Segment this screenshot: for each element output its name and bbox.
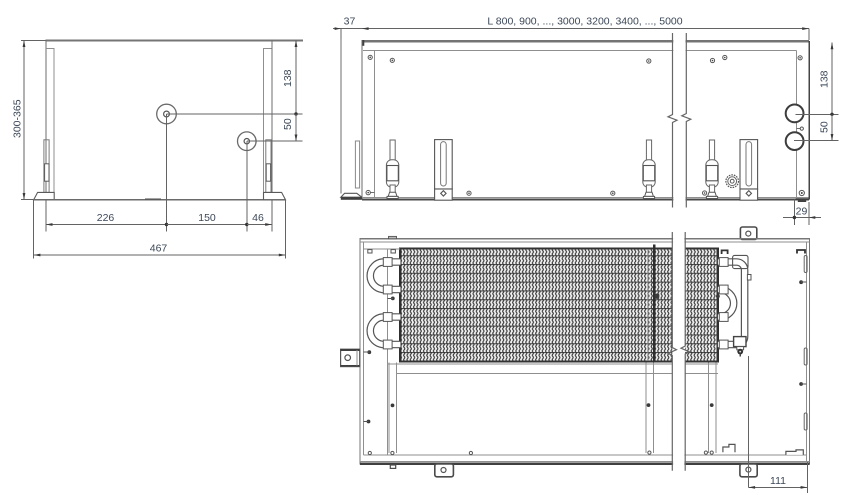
svg-text:46: 46: [252, 212, 264, 224]
svg-text:467: 467: [150, 243, 168, 255]
svg-text:300-365: 300-365: [12, 99, 24, 138]
svg-text:L 800, 900, ..., 3000, 3200, 3: L 800, 900, ..., 3000, 3200, 3400, ..., …: [487, 16, 682, 28]
svg-text:138: 138: [819, 70, 831, 88]
svg-text:50: 50: [819, 121, 831, 133]
svg-text:150: 150: [198, 212, 216, 224]
svg-text:29: 29: [796, 205, 808, 217]
svg-text:37: 37: [344, 16, 356, 28]
svg-text:138: 138: [282, 69, 294, 87]
svg-text:50: 50: [282, 118, 294, 130]
svg-text:226: 226: [97, 212, 115, 224]
svg-text:111: 111: [770, 475, 786, 487]
